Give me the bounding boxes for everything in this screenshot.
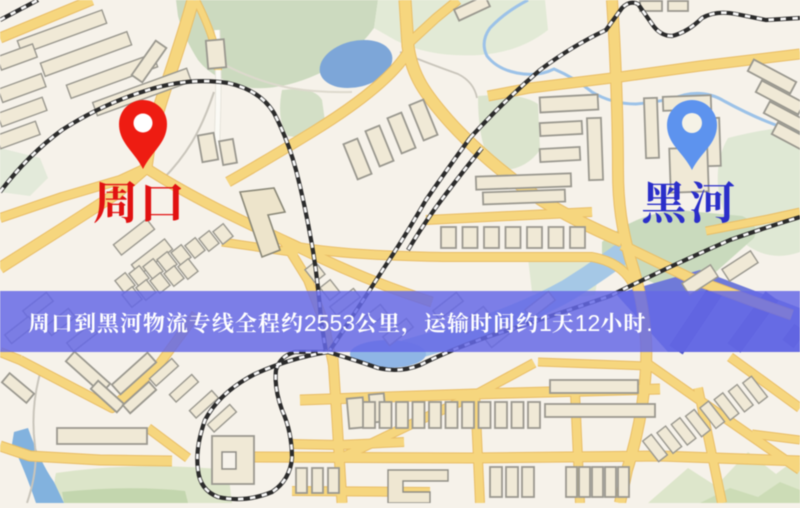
svg-text:1: 1 — [539, 310, 552, 336]
svg-text:12: 12 — [575, 310, 601, 336]
svg-text:2553: 2553 — [304, 310, 355, 336]
svg-text:.: . — [646, 310, 652, 336]
